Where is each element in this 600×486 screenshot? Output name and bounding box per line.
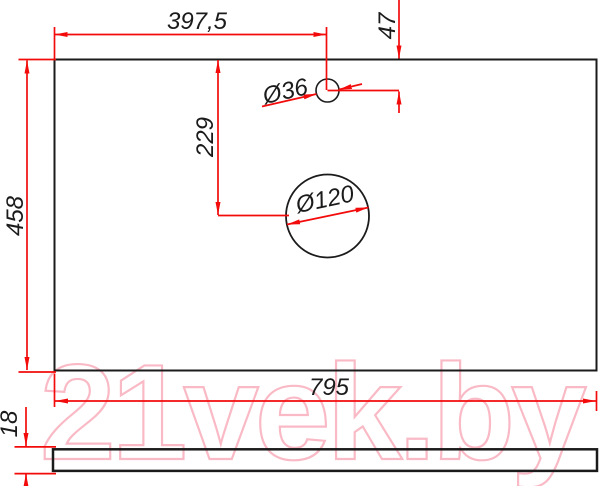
dim-label-small-hole: Ø36: [259, 73, 311, 110]
dim-label-hole-offset: 47: [374, 11, 401, 39]
technical-drawing-page: 21vek.by: [0, 0, 600, 486]
dim-label-height: 458: [2, 195, 29, 236]
part-drawing-svg: 21vek.by: [0, 0, 600, 486]
dim-label-width: 795: [309, 374, 350, 401]
watermark-text: 21vek.by: [40, 336, 586, 486]
dim-label-thickness: 18: [0, 410, 23, 437]
dim-label-229: 229: [192, 117, 219, 158]
main-panel-outline: [55, 60, 597, 371]
dim-label-large-hole: Ø120: [292, 180, 357, 219]
dim-label-top-width: 397,5: [167, 8, 228, 35]
leader-small-hole-right: [339, 84, 362, 90]
